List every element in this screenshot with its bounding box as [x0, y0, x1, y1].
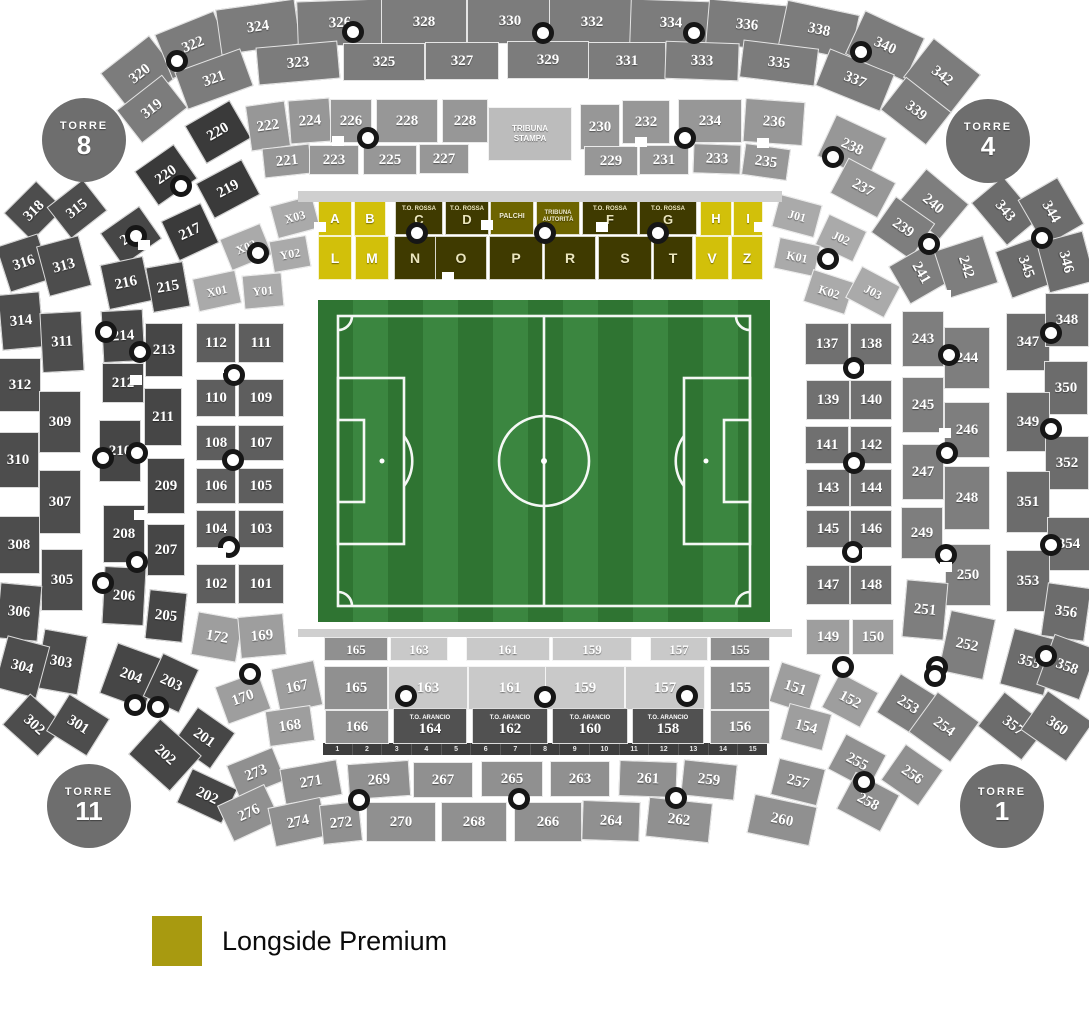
- section-205[interactable]: 205: [144, 589, 187, 643]
- section-335[interactable]: 335: [739, 40, 819, 87]
- section-label: 249: [911, 526, 934, 541]
- section-325[interactable]: 325: [343, 43, 425, 81]
- section-327[interactable]: 327: [425, 42, 499, 80]
- section-label: 309: [49, 415, 72, 430]
- walkway-marker: [939, 428, 951, 438]
- section-label: 156: [729, 720, 752, 735]
- section-label: 336: [735, 17, 759, 34]
- section-160[interactable]: T.O. ARANCIO160: [552, 708, 628, 744]
- section-label: 172: [205, 628, 230, 647]
- gate-marker: [534, 222, 556, 244]
- section-label: X01: [206, 283, 229, 299]
- section-label: A: [330, 212, 339, 225]
- section-220[interactable]: 220: [134, 144, 197, 206]
- section-label: Y01: [252, 284, 274, 298]
- tower-number: 1: [995, 798, 1009, 825]
- section-label: 263: [569, 772, 592, 787]
- section-label: 109: [250, 391, 273, 406]
- section-155[interactable]: 155: [710, 637, 770, 661]
- section-169[interactable]: 169: [237, 613, 286, 659]
- section-224[interactable]: 224: [288, 98, 333, 145]
- section-351[interactable]: 351: [1006, 471, 1050, 533]
- section-360[interactable]: 360: [1020, 690, 1089, 761]
- section-label: 260: [769, 810, 794, 829]
- section-label: 228: [454, 114, 477, 129]
- section-label: 251: [913, 602, 937, 619]
- section-333[interactable]: 333: [664, 41, 739, 82]
- section-label: S: [620, 251, 629, 265]
- section-label: 112: [205, 336, 227, 351]
- section-270[interactable]: 270: [366, 802, 436, 842]
- section-v[interactable]: V: [695, 236, 729, 280]
- gate-marker: [1040, 418, 1062, 440]
- section-305[interactable]: 305: [41, 549, 83, 611]
- section-310[interactable]: 310: [0, 432, 39, 488]
- section-label: J02: [830, 229, 851, 247]
- row-number: 14: [709, 743, 739, 755]
- tower-8: TORRE8: [42, 98, 126, 182]
- section-264[interactable]: 264: [581, 800, 640, 842]
- section-label: 142: [860, 438, 883, 453]
- gate-marker: [170, 175, 192, 197]
- section-101[interactable]: 101: [238, 564, 284, 604]
- structure-strip: [298, 629, 792, 637]
- section-label: 228: [396, 114, 419, 129]
- section-label: 243: [912, 332, 935, 347]
- section-230[interactable]: 230: [580, 104, 620, 150]
- section-label: 137: [816, 337, 839, 352]
- section-148[interactable]: 148: [850, 565, 892, 605]
- section-label: J03: [862, 282, 884, 301]
- section-label: 267: [432, 773, 455, 788]
- tower-4: TORRE4: [946, 99, 1030, 183]
- section-m[interactable]: M: [355, 236, 389, 280]
- section-326[interactable]: 326: [296, 0, 384, 47]
- gate-marker: [1040, 534, 1062, 556]
- section-263[interactable]: 263: [550, 761, 610, 797]
- walkway-marker: [940, 562, 952, 572]
- section-158[interactable]: T.O. ARANCIO158: [632, 708, 704, 744]
- section-313[interactable]: 313: [36, 235, 92, 297]
- section-label: 313: [51, 256, 77, 276]
- section-259[interactable]: 259: [680, 759, 737, 800]
- section-306[interactable]: 306: [0, 582, 42, 641]
- legend: Longside Premium: [152, 916, 447, 966]
- section-216[interactable]: 216: [100, 256, 153, 310]
- section-145[interactable]: 145: [806, 510, 850, 548]
- section-y01[interactable]: Y01: [242, 272, 285, 309]
- section-155[interactable]: 155: [710, 666, 770, 710]
- gate-marker: [166, 50, 188, 72]
- section-label: 352: [1056, 456, 1079, 471]
- section-231[interactable]: 231: [639, 145, 689, 175]
- section-label: 102: [205, 577, 228, 592]
- section-161[interactable]: 161: [466, 637, 550, 661]
- section-141[interactable]: 141: [805, 426, 849, 464]
- section-label: 158: [657, 722, 680, 737]
- section-label: 219: [215, 177, 242, 201]
- section-label: 258: [855, 790, 882, 814]
- section-label: 159: [582, 643, 602, 656]
- section-140[interactable]: 140: [850, 380, 892, 420]
- section-352[interactable]: 352: [1045, 436, 1089, 490]
- section-label: 329: [537, 53, 560, 68]
- section-label: 222: [256, 117, 280, 135]
- gate-marker: [534, 686, 556, 708]
- section-219[interactable]: 219: [196, 159, 261, 219]
- section-228[interactable]: 228: [376, 99, 438, 143]
- section-label: 250: [957, 568, 980, 583]
- row-number: 13: [679, 743, 709, 755]
- section-211[interactable]: 211: [144, 388, 182, 446]
- section-166[interactable]: 166: [325, 710, 389, 744]
- section-label: 104: [205, 522, 228, 537]
- section-156[interactable]: 156: [710, 710, 770, 744]
- walkway-marker: [332, 136, 344, 146]
- section-label: 150: [862, 630, 885, 645]
- row-number: 11: [620, 743, 650, 755]
- section-149[interactable]: 149: [806, 619, 850, 655]
- section-162[interactable]: T.O. ARANCIO162: [472, 708, 548, 744]
- section-label: 205: [154, 607, 178, 624]
- section-label: 215: [156, 278, 181, 297]
- section-312[interactable]: 312: [0, 358, 41, 412]
- section-label: 324: [246, 18, 270, 36]
- section-label: 101: [250, 577, 273, 592]
- walkway-marker: [442, 272, 454, 282]
- section-label: 265: [501, 772, 524, 787]
- stadium-map: 123456789101112131415 Longside Premium 3…: [0, 0, 1089, 1032]
- section-label: 139: [817, 393, 840, 408]
- section-label: 247: [912, 465, 935, 480]
- section-l[interactable]: L: [318, 236, 352, 280]
- gate-marker: [508, 788, 530, 810]
- section-label: 304: [9, 657, 35, 677]
- section-150[interactable]: 150: [852, 619, 894, 655]
- section-label: 356: [1054, 603, 1078, 621]
- section-label: 256: [898, 762, 925, 787]
- section-314[interactable]: 314: [0, 291, 44, 350]
- section-label: 162: [499, 722, 522, 737]
- section-236[interactable]: 236: [743, 98, 806, 146]
- section-331[interactable]: 331: [588, 42, 666, 80]
- section-label: 301: [64, 713, 91, 738]
- walkway-marker: [212, 363, 224, 373]
- gate-marker: [1031, 227, 1053, 249]
- section-label: J01: [787, 208, 807, 224]
- gate-marker: [850, 41, 872, 63]
- section-label: 157: [669, 643, 689, 656]
- section-106[interactable]: 106: [196, 468, 236, 504]
- section-label: 311: [51, 334, 73, 350]
- section-h[interactable]: H: [700, 200, 732, 236]
- section-323[interactable]: 323: [256, 40, 341, 85]
- section-label: 149: [817, 630, 840, 645]
- section-301[interactable]: 301: [46, 694, 110, 757]
- section-label: 259: [697, 771, 721, 788]
- section-332[interactable]: 332: [549, 0, 635, 45]
- section-172[interactable]: 172: [191, 611, 244, 662]
- section-label: 147: [817, 578, 840, 593]
- section-307[interactable]: 307: [39, 470, 81, 534]
- section-label: 213: [153, 343, 176, 358]
- section-159[interactable]: 159: [545, 666, 625, 710]
- section-label: 201: [190, 725, 217, 750]
- section-109[interactable]: 109: [238, 379, 284, 417]
- gate-marker: [126, 442, 148, 464]
- section-tribuna-stampa[interactable]: TRIBUNA STAMPA: [488, 107, 572, 161]
- section-228[interactable]: 228: [442, 99, 488, 143]
- section-label: 350: [1055, 381, 1078, 396]
- section-label: 306: [7, 604, 31, 621]
- section-350[interactable]: 350: [1044, 361, 1088, 415]
- section-207[interactable]: 207: [147, 524, 185, 576]
- section-111[interactable]: 111: [238, 323, 284, 363]
- row-number: 2: [353, 743, 383, 755]
- section-label: 323: [286, 55, 310, 72]
- section-label: N: [410, 251, 420, 265]
- gate-marker: [348, 789, 370, 811]
- section-label: 141: [816, 438, 839, 453]
- section-143[interactable]: 143: [806, 469, 850, 507]
- section-329[interactable]: 329: [507, 41, 589, 79]
- section-222[interactable]: 222: [245, 100, 291, 151]
- section-f[interactable]: T.O. ROSSAF: [582, 197, 638, 235]
- section-label: 208: [113, 527, 136, 542]
- section-165[interactable]: 165: [324, 637, 388, 661]
- section-139[interactable]: 139: [806, 380, 850, 420]
- section-144[interactable]: 144: [850, 469, 892, 507]
- section-label: 231: [653, 153, 676, 168]
- row-number: 3: [382, 743, 412, 755]
- section-label: 202: [194, 784, 221, 807]
- section-label: 328: [413, 15, 436, 30]
- section-label: 335: [767, 54, 791, 72]
- section-label: 110: [205, 391, 227, 406]
- row-number: 1: [323, 743, 353, 755]
- section-label: 160: [579, 722, 602, 737]
- section-168[interactable]: 168: [265, 705, 316, 747]
- tower-number: 8: [77, 132, 91, 159]
- section-label: 105: [250, 479, 273, 494]
- section-label: 274: [285, 812, 310, 831]
- section-label: 276: [236, 801, 263, 824]
- section-223[interactable]: 223: [309, 145, 359, 175]
- structure-strip: [298, 191, 782, 202]
- section-147[interactable]: 147: [806, 565, 850, 605]
- section-102[interactable]: 102: [196, 564, 236, 604]
- gate-marker: [532, 22, 554, 44]
- section-label: 155: [729, 681, 752, 696]
- legend-label: Longside Premium: [222, 926, 447, 957]
- section-315[interactable]: 315: [47, 179, 108, 239]
- section-label: 266: [537, 815, 560, 830]
- section-label: 351: [1017, 495, 1040, 510]
- section-label: 232: [635, 115, 658, 130]
- row-number: 9: [560, 743, 590, 755]
- section-label: 233: [705, 151, 728, 167]
- section-label: 331: [616, 54, 639, 69]
- row-number: 5: [442, 743, 472, 755]
- section-label: 229: [600, 154, 623, 169]
- section-label: R: [565, 251, 575, 265]
- section-label: 106: [205, 479, 228, 494]
- section-308[interactable]: 308: [0, 516, 40, 574]
- section-227[interactable]: 227: [419, 144, 469, 174]
- section-229[interactable]: 229: [584, 146, 638, 176]
- gate-marker: [647, 222, 669, 244]
- gate-marker: [247, 242, 269, 264]
- section-s[interactable]: S: [598, 236, 652, 280]
- section-220[interactable]: 220: [184, 100, 251, 164]
- section-label: PALCHI: [499, 213, 525, 222]
- section-309[interactable]: 309: [39, 391, 81, 453]
- pitch-lines: [318, 300, 770, 622]
- walkway-marker: [635, 137, 647, 147]
- section-label: 334: [659, 15, 682, 31]
- section-165[interactable]: 165: [324, 666, 388, 710]
- section-label: 253: [894, 693, 921, 718]
- section-label: 111: [251, 336, 272, 351]
- football-pitch: [318, 300, 770, 622]
- section-label: 157: [654, 681, 677, 696]
- gate-marker: [822, 146, 844, 168]
- section-label: 262: [667, 811, 691, 828]
- walkway-marker: [754, 222, 766, 232]
- section-label: 227: [433, 152, 456, 167]
- gate-marker: [1040, 322, 1062, 344]
- section-label: 337: [842, 69, 868, 91]
- section-154[interactable]: 154: [780, 703, 832, 751]
- section-y02[interactable]: Y02: [269, 235, 312, 273]
- section-267[interactable]: 267: [413, 762, 473, 798]
- section-x03[interactable]: X03: [269, 195, 320, 239]
- section-label: 272: [329, 814, 353, 831]
- walkway-marker: [134, 510, 146, 520]
- section-label: 216: [113, 273, 138, 292]
- walkway-marker: [481, 220, 493, 230]
- section-311[interactable]: 311: [39, 311, 84, 373]
- section-157[interactable]: 157: [650, 637, 708, 661]
- section-163[interactable]: 163: [390, 637, 448, 661]
- section-r[interactable]: R: [544, 236, 596, 280]
- tower-11: TORRE11: [47, 764, 131, 848]
- section-label: 206: [112, 588, 135, 604]
- section-label: TRIBUNA STAMPA: [512, 124, 548, 144]
- section-328[interactable]: 328: [381, 0, 467, 45]
- section-107[interactable]: 107: [238, 425, 284, 461]
- section-label: 165: [346, 643, 366, 656]
- section-label: 308: [8, 538, 31, 553]
- section-225[interactable]: 225: [363, 145, 417, 175]
- section-label: 340: [872, 34, 899, 57]
- gate-marker: [124, 694, 146, 716]
- section-label: 237: [850, 176, 877, 200]
- section-z[interactable]: Z: [731, 236, 763, 280]
- tower-1: TORRE1: [960, 764, 1044, 848]
- section-245[interactable]: 245: [902, 377, 944, 433]
- section-268[interactable]: 268: [441, 802, 507, 842]
- section-label: 343: [992, 198, 1018, 225]
- section-label: 140: [860, 393, 883, 408]
- section-251[interactable]: 251: [902, 579, 949, 640]
- section-105[interactable]: 105: [238, 468, 284, 504]
- section-label: 220: [205, 120, 232, 144]
- gate-marker: [938, 344, 960, 366]
- section-label: D: [462, 213, 471, 226]
- section-label: 339: [903, 98, 930, 124]
- section-x01[interactable]: X01: [192, 270, 242, 312]
- section-label: 209: [155, 479, 178, 494]
- section-label: 316: [11, 252, 37, 273]
- section-label: 245: [912, 398, 935, 413]
- section-353[interactable]: 353: [1006, 550, 1050, 612]
- section-248[interactable]: 248: [944, 466, 990, 530]
- section-label: 234: [699, 114, 722, 129]
- section-b[interactable]: B: [354, 200, 386, 236]
- section-137[interactable]: 137: [805, 323, 849, 365]
- row-number: 10: [590, 743, 620, 755]
- section-label: 332: [581, 15, 604, 30]
- legend-swatch: [152, 916, 202, 966]
- gate-marker: [936, 442, 958, 464]
- section-label: 358: [1054, 656, 1080, 678]
- section-356[interactable]: 356: [1040, 582, 1089, 642]
- section-221[interactable]: 221: [262, 144, 313, 179]
- gate-marker: [843, 357, 865, 379]
- section-label: 338: [806, 20, 831, 39]
- section-label: 161: [498, 643, 518, 656]
- gate-marker: [239, 663, 261, 685]
- gate-marker: [126, 551, 148, 573]
- section-p[interactable]: P: [489, 236, 543, 280]
- section-label: 252: [954, 635, 979, 654]
- section-label: 107: [250, 436, 273, 451]
- section-label: 240: [920, 191, 947, 217]
- section-label: 155: [730, 643, 750, 656]
- gate-marker: [95, 321, 117, 343]
- section-label: 325: [373, 55, 396, 70]
- section-label: H: [711, 212, 720, 225]
- gate-marker: [842, 541, 864, 563]
- row-number: 15: [738, 743, 767, 755]
- section-164[interactable]: T.O. ARANCIO164: [393, 708, 467, 744]
- gate-marker: [683, 22, 705, 44]
- section-label: 330: [499, 14, 522, 29]
- section-label: 254: [930, 714, 957, 739]
- section-209[interactable]: 209: [147, 458, 185, 514]
- gate-marker: [843, 452, 865, 474]
- section-label: 225: [379, 153, 402, 168]
- section-103[interactable]: 103: [238, 510, 284, 548]
- section-235[interactable]: 235: [741, 143, 791, 181]
- gate-marker: [817, 248, 839, 270]
- section-label: K02: [817, 283, 841, 301]
- section-label: 154: [793, 717, 819, 737]
- section-159[interactable]: 159: [552, 637, 632, 661]
- section-label: 159: [574, 681, 597, 696]
- section-label: 236: [762, 114, 785, 131]
- section-233[interactable]: 233: [692, 143, 741, 175]
- walkway-marker: [214, 548, 226, 558]
- gate-marker: [147, 696, 169, 718]
- section-label: 166: [346, 720, 369, 735]
- section-palchi[interactable]: PALCHI: [490, 199, 534, 235]
- section-label: 246: [956, 423, 979, 438]
- section-215[interactable]: 215: [145, 261, 190, 313]
- walkway-marker: [939, 290, 951, 300]
- section-112[interactable]: 112: [196, 323, 236, 363]
